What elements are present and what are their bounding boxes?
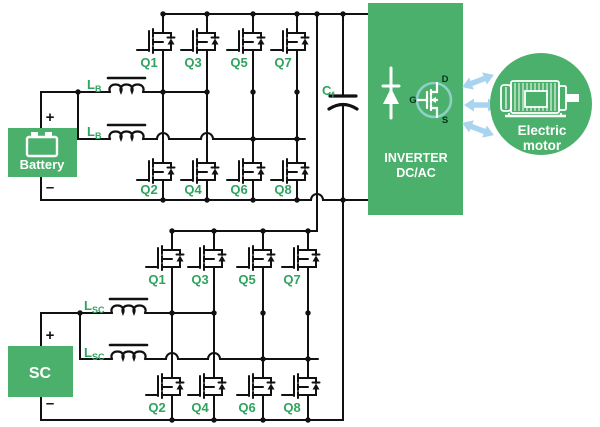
sc-minus-sign: – xyxy=(46,395,54,412)
switch-label-q6-battery: Q6 xyxy=(230,182,247,197)
drain-pin-label: D xyxy=(442,74,449,85)
switch-label-q1-sc: Q1 xyxy=(148,272,165,287)
switch-label-q3-sc: Q3 xyxy=(191,272,208,287)
mosfet-q2-sc xyxy=(146,373,184,400)
mosfet-q8-battery xyxy=(271,158,309,185)
inductor-lb1 xyxy=(108,78,145,92)
sc-label: SC xyxy=(29,365,52,382)
capacitor-cf-label: Cf xyxy=(322,83,335,100)
mosfet-q4-battery xyxy=(181,158,219,185)
inductor-lb2 xyxy=(108,125,145,139)
mosfet-q7-sc xyxy=(282,245,320,272)
inverter-title-line2: DC/AC xyxy=(396,166,436,180)
switch-label-q6-sc: Q6 xyxy=(238,400,255,415)
switch-label-q8-battery: Q8 xyxy=(274,182,291,197)
dc-link: Cf xyxy=(322,14,357,109)
mosfet-q3-battery xyxy=(181,28,219,55)
inductor-lsc1 xyxy=(110,299,147,313)
inverter-block: G D S INVERTER DC/AC xyxy=(368,3,463,215)
sc-block: SC xyxy=(8,346,73,397)
switch-label-q2-sc: Q2 xyxy=(148,400,165,415)
inductor-lb1-label: LB xyxy=(87,77,102,94)
sc-plus-sign: + xyxy=(46,327,55,344)
mosfet-q1-sc xyxy=(146,245,184,272)
battery-converter: LB LB Q1 Q3 Q5 Q7 Q2 Q4 Q6 Q8 + – Batter… xyxy=(8,11,368,202)
motor-label-line1: Electric xyxy=(518,123,567,138)
arrow-top-icon xyxy=(460,69,496,93)
switch-label-q7-battery: Q7 xyxy=(274,55,291,70)
battery-block: Battery xyxy=(8,128,77,177)
inductor-lsc1-label: LSC xyxy=(84,298,105,315)
circuit-diagram: LB LB Q1 Q3 Q5 Q7 Q2 Q4 Q6 Q8 + – Batter… xyxy=(0,0,600,427)
mosfet-q3-sc xyxy=(188,245,226,272)
sc-converter: LSC LSC Q1 Q3 Q5 Q7 Q2 Q4 Q6 Q8 + – SC xyxy=(8,14,343,423)
battery-plus-sign: + xyxy=(46,109,55,126)
mosfet-q5-battery xyxy=(227,28,265,55)
mosfet-q8-sc xyxy=(282,373,320,400)
inductor-lsc2 xyxy=(110,345,147,359)
power-electronics-diagram: LB LB Q1 Q3 Q5 Q7 Q2 Q4 Q6 Q8 + – Batter… xyxy=(0,0,600,427)
mosfet-q2-battery xyxy=(137,158,175,185)
source-pin-label: S xyxy=(442,115,448,126)
sc-converter-junction-dots xyxy=(77,228,310,422)
gate-pin-label: G xyxy=(409,95,416,106)
mosfet-q4-sc xyxy=(188,373,226,400)
mosfet-q5-sc xyxy=(237,245,275,272)
battery-label: Battery xyxy=(20,157,66,172)
switch-label-q4-battery: Q4 xyxy=(184,182,202,197)
motor-label-line2: motor xyxy=(523,138,562,153)
switch-label-q7-sc: Q7 xyxy=(283,272,300,287)
switch-label-q2-battery: Q2 xyxy=(140,182,157,197)
mosfet-q1-battery xyxy=(137,28,175,55)
inductor-lb2-label: LB xyxy=(87,124,102,141)
motor-block: Electric motor xyxy=(490,53,592,155)
switch-label-q3-battery: Q3 xyxy=(184,55,201,70)
switch-label-q5-sc: Q5 xyxy=(238,272,255,287)
battery-minus-sign: – xyxy=(46,179,54,196)
mosfet-q7-battery xyxy=(271,28,309,55)
mosfet-q6-battery xyxy=(227,158,265,185)
switch-label-q1-battery: Q1 xyxy=(140,55,157,70)
mosfet-q6-sc xyxy=(237,373,275,400)
inductor-lsc2-label: LSC xyxy=(84,345,105,362)
inverter-title-line1: INVERTER xyxy=(384,151,447,165)
arrow-bottom-icon xyxy=(460,117,496,141)
switch-label-q4-sc: Q4 xyxy=(191,400,209,415)
switch-label-q5-battery: Q5 xyxy=(230,55,247,70)
switch-label-q8-sc: Q8 xyxy=(283,400,300,415)
